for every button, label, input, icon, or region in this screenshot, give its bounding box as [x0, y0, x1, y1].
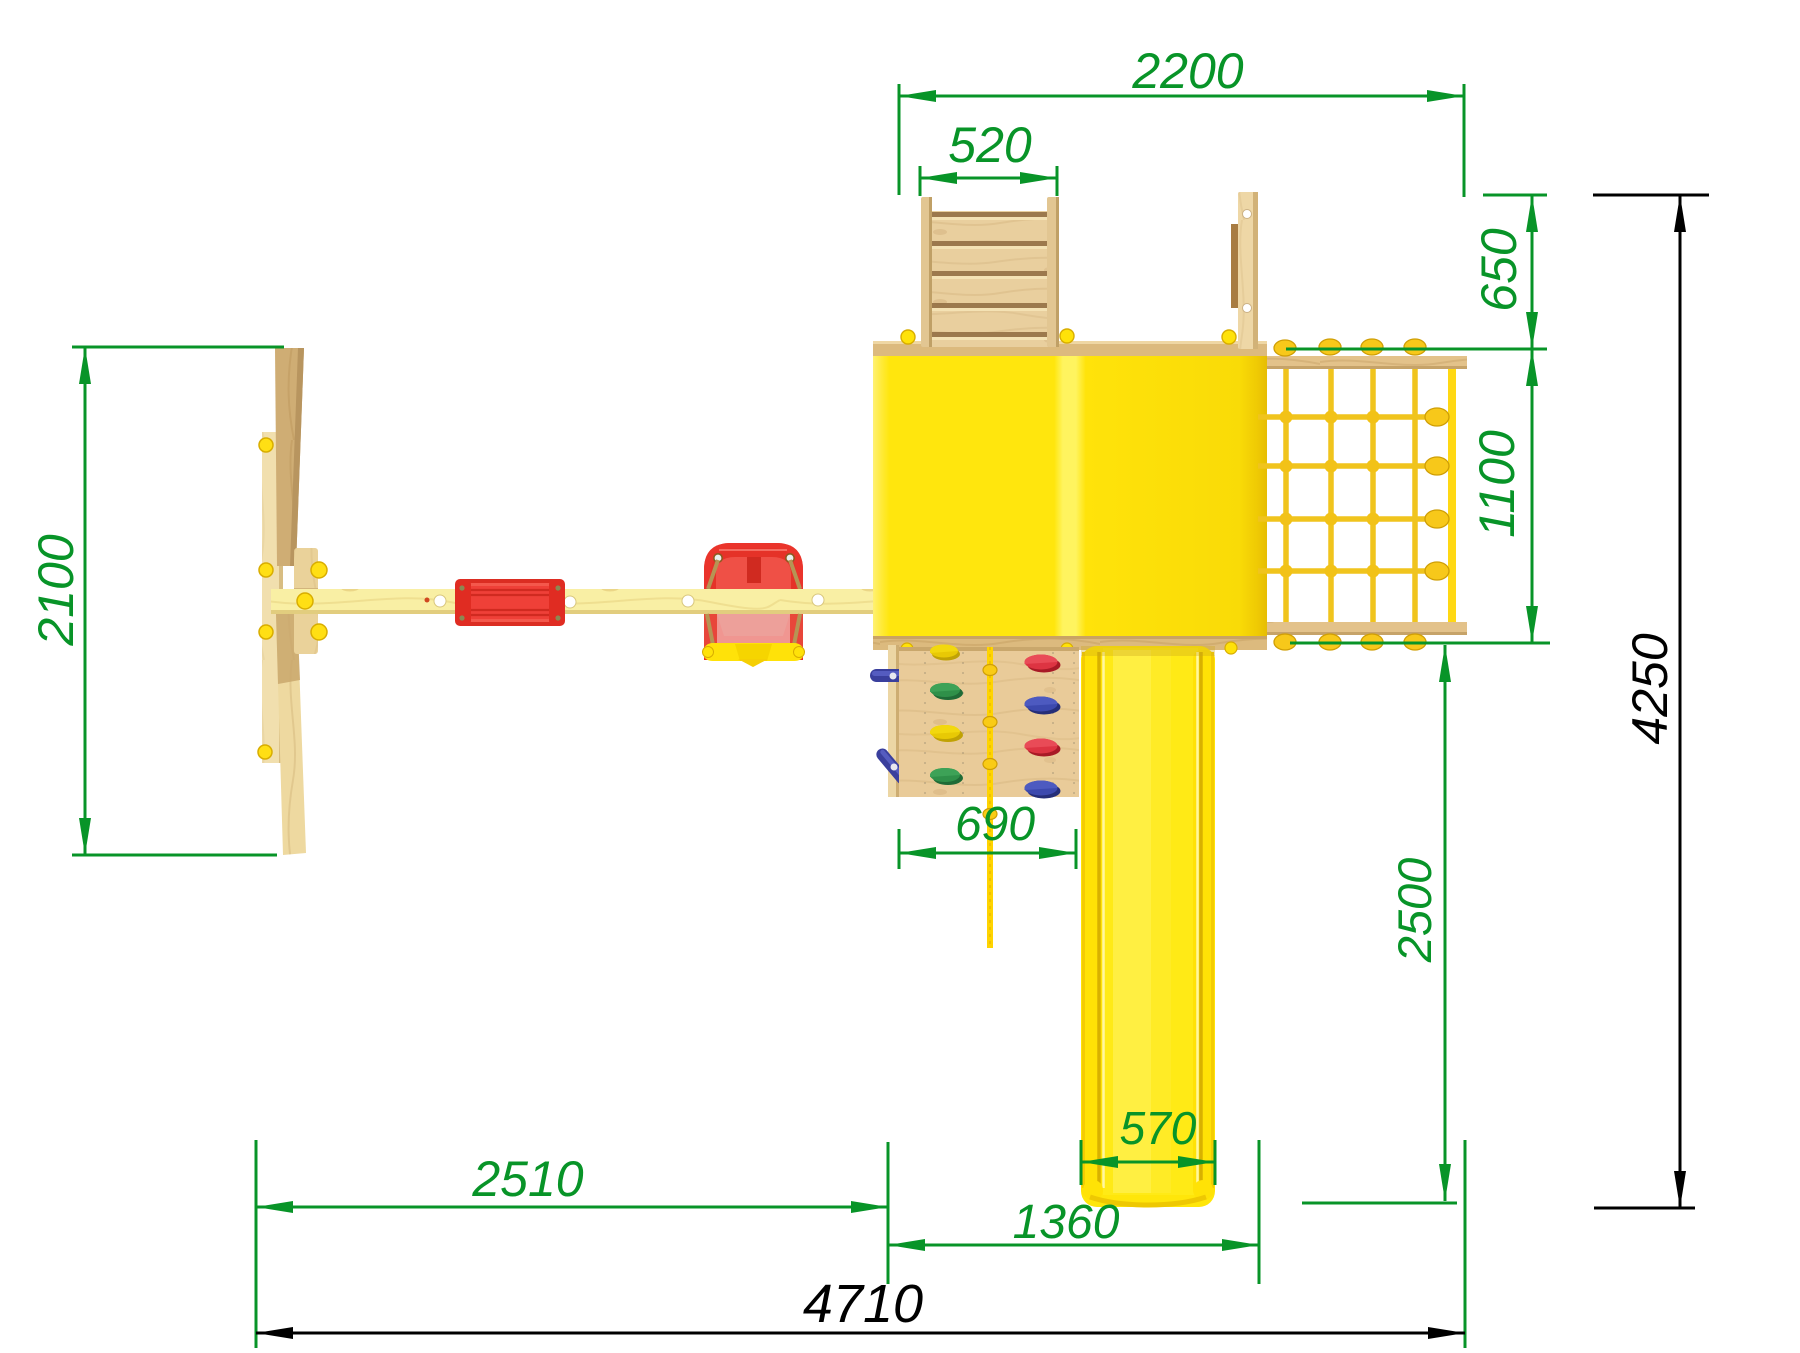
svg-text:690: 690 — [955, 798, 1035, 851]
svg-text:520: 520 — [948, 117, 1032, 173]
svg-text:2500: 2500 — [1388, 858, 1441, 964]
svg-text:1100: 1100 — [1469, 430, 1525, 538]
svg-text:4250: 4250 — [1622, 633, 1678, 744]
svg-text:4710: 4710 — [803, 1274, 923, 1334]
svg-text:1360: 1360 — [1013, 1196, 1120, 1249]
svg-text:2200: 2200 — [1131, 43, 1243, 99]
svg-text:570: 570 — [1120, 1102, 1197, 1154]
svg-text:650: 650 — [1471, 228, 1527, 312]
svg-text:2100: 2100 — [28, 534, 84, 646]
svg-text:2510: 2510 — [471, 1151, 583, 1207]
